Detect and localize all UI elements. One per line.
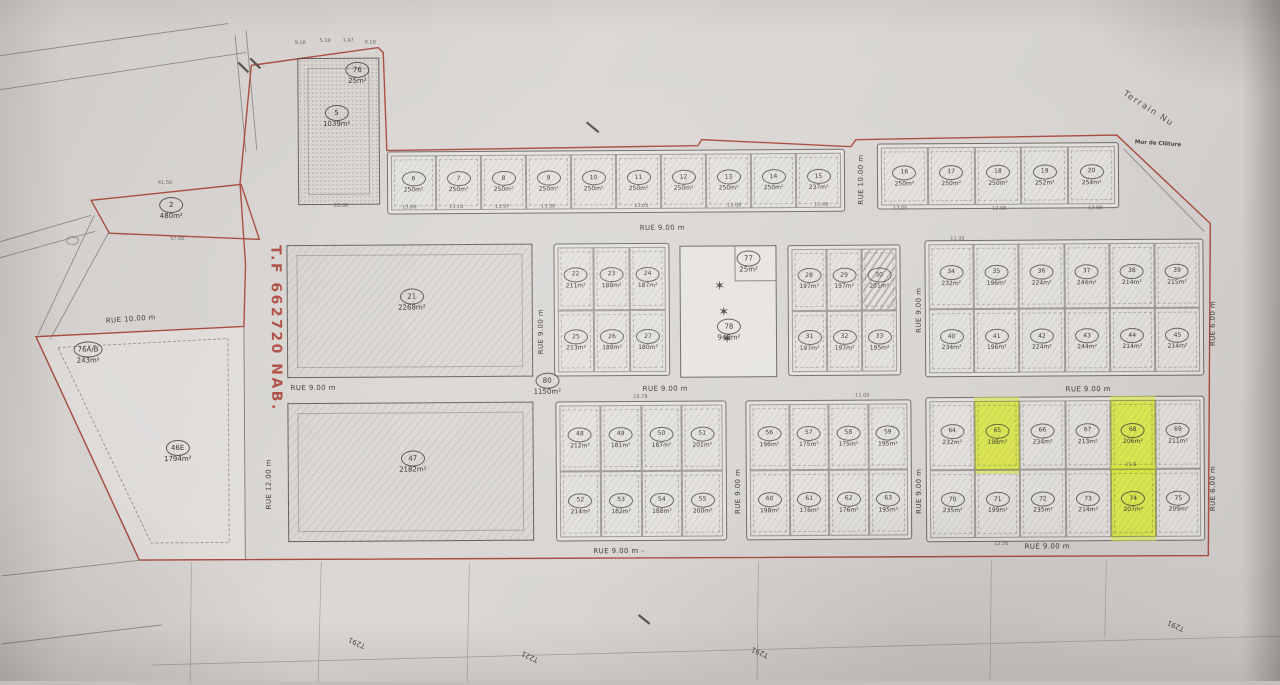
lot-area: 197m²: [800, 346, 820, 353]
lot-number: 36: [1029, 264, 1053, 279]
lot-20: 20254m²: [1068, 146, 1115, 204]
dimension-label: 10.78: [633, 394, 647, 400]
lot-area: 211m²: [566, 283, 586, 290]
lot-area: 250m²: [988, 180, 1008, 187]
lot-number: 38: [1120, 264, 1144, 279]
dimension-label: 13.08: [402, 204, 416, 210]
dimension-label: 13.06: [541, 204, 555, 210]
lot-number: 20: [1080, 164, 1104, 179]
parcel-area: 1039m²: [323, 121, 350, 129]
lot-9: 9250m²: [526, 154, 571, 209]
lot-24: 24187m²: [629, 247, 665, 310]
lot-area: 250m²: [674, 186, 694, 193]
lot-23: 23188m²: [593, 247, 629, 310]
lot-number: 52: [568, 493, 592, 508]
lot-number: 44: [1120, 328, 1144, 343]
lot-number: 53: [609, 493, 633, 508]
lot-67: 67213m²: [1065, 400, 1111, 469]
block-56-63: 56196m²57175m²58175m²59195m²60198m²61176…: [745, 399, 912, 540]
lot-area: 181m²: [611, 443, 631, 450]
lot-73: 73214m²: [1065, 469, 1111, 538]
lot-area: 197m²: [799, 284, 819, 291]
lot-area: 250m²: [764, 185, 784, 192]
street-label: RUE 9.00 m –: [593, 547, 645, 555]
lot-43: 43244m²: [1064, 308, 1110, 373]
lot-11: 11250m²: [616, 154, 661, 209]
parcel-badge-77: 7725m²: [736, 250, 760, 274]
lot-number: 7: [446, 171, 470, 186]
lot-area: 244m²: [1077, 345, 1097, 352]
lot-60: 60198m²: [750, 470, 790, 536]
lot-area: 244m²: [1077, 280, 1097, 287]
lot-8: 8250m²: [481, 155, 526, 210]
parcel-number: 77: [736, 250, 760, 266]
lot-area: 209m²: [1169, 507, 1189, 514]
dimension-label: 20.00: [334, 203, 348, 209]
block-28-33: 28197m²29197m²30201m²31197m²32197m²33195…: [787, 244, 901, 376]
lot-number: 6: [401, 172, 425, 187]
parcel-badge-5: 51039m²: [323, 105, 351, 129]
street-label: RUE 9.00 m: [915, 469, 923, 514]
lot-32: 32197m²: [827, 310, 862, 372]
parcel-number: 47: [401, 450, 425, 466]
lot-42: 42224m²: [1019, 308, 1065, 373]
title-deed-number: T.F 662720 NAB.: [267, 245, 284, 412]
lot-area: 250m²: [404, 188, 424, 195]
dimension-label: 13.10: [449, 204, 463, 210]
lot-area: 188m²: [602, 283, 622, 290]
street-label: RUE 9.00 m: [537, 309, 545, 354]
lot-number: 49: [609, 427, 633, 442]
lot-number: 57: [797, 426, 821, 441]
dimension-label: 12.50: [994, 541, 1008, 547]
lot-49: 49181m²: [600, 405, 641, 471]
lot-number: 60: [758, 492, 782, 507]
lot-number: 30: [867, 268, 891, 283]
dimension-label: 5.10: [320, 38, 331, 44]
lot-number: 50: [649, 427, 673, 442]
lot-area: 188m²: [652, 509, 672, 516]
lot-number: 15: [806, 169, 830, 184]
lot-area: 215m²: [1167, 280, 1187, 287]
lot-area: 195m²: [878, 441, 898, 448]
lot-62: 62176m²: [829, 470, 869, 536]
lot-number: 45: [1165, 328, 1189, 343]
parcel-badge-2: 2480m²: [159, 197, 183, 221]
lot-41: 41196m²: [974, 308, 1020, 373]
dimension-label: 57.00: [170, 236, 184, 242]
lot-number: 55: [691, 492, 715, 507]
lot-number: 26: [600, 330, 624, 345]
lot-area: 196m²: [987, 345, 1007, 352]
parcel-number: 46E: [166, 440, 190, 456]
lot-54: 54188m²: [641, 471, 682, 537]
lot-number: 58: [836, 425, 860, 440]
lot-16: 16250m²: [881, 147, 928, 205]
adjacent-title-label: T221: [520, 649, 539, 664]
lot-number: 75: [1166, 491, 1190, 506]
lot-area: 201m²: [692, 442, 712, 449]
parcel-badge-76: 7625m²: [345, 62, 369, 86]
lot-area: 175m²: [799, 442, 819, 449]
lot-area: 250m²: [719, 186, 739, 193]
lot-number: 54: [650, 492, 674, 507]
lot-29: 29197m²: [826, 249, 861, 311]
block-48-55: 48212m²49181m²50187m²51201m²52214m²53182…: [555, 400, 727, 541]
lot-area: 235m²: [943, 508, 963, 515]
lot-area: 196m²: [760, 442, 780, 449]
dimension-label: 13.05: [634, 203, 648, 209]
terrain-nu-label: Terrain Nu: [1121, 89, 1175, 129]
lot-number: 10: [581, 170, 605, 185]
mur-de-cloture-label: Mur de Clôture: [1135, 139, 1182, 148]
lot-number: 42: [1030, 329, 1054, 344]
parcel-area: 1794m²: [164, 456, 191, 464]
lot-number: 31: [797, 330, 821, 345]
lot-number: 18: [986, 164, 1010, 179]
lot-number: 67: [1076, 423, 1100, 438]
lot-area: 197m²: [834, 284, 854, 291]
lot-area: 252m²: [1035, 180, 1055, 187]
lot-61: 61176m²: [789, 470, 829, 536]
lot-number: 37: [1075, 264, 1099, 279]
lot-number: 9: [536, 171, 560, 186]
parcel-badge-21: 212268m²: [398, 288, 426, 312]
dimension-label: 13.97: [495, 204, 509, 210]
lot-area: 234m²: [1033, 439, 1053, 446]
lot-area: 250m²: [895, 181, 915, 188]
lot-area: 235m²: [1033, 508, 1053, 515]
lot-14: 14250m²: [751, 153, 796, 208]
adjacent-title-label: T291: [1166, 618, 1185, 633]
lot-area: 214m²: [1122, 344, 1142, 351]
street-label: RUE 9.00 m: [734, 469, 742, 514]
street-label: RUE 10.00 m: [106, 313, 157, 325]
lot-area: 198m²: [760, 508, 780, 515]
lot-66: 66234m²: [1020, 400, 1066, 469]
lot-area: 211m²: [1168, 439, 1188, 446]
lot-area: 250m²: [941, 181, 961, 188]
lot-number: 41: [985, 329, 1009, 344]
parcel-area: 1150m²: [534, 389, 561, 397]
lot-number: 39: [1165, 264, 1189, 279]
adjacent-title-label: T291: [750, 645, 769, 659]
street-label: RUE 9.00 m: [643, 385, 688, 393]
lot-number: 64: [940, 424, 964, 439]
dimension-label: 12.08: [1088, 205, 1102, 211]
lot-number: 65: [985, 424, 1009, 439]
dimension-label: 11.35: [950, 236, 964, 242]
lot-number: 16: [892, 165, 916, 180]
lot-10: 10250m²: [571, 154, 616, 209]
lot-57: 57175m²: [789, 404, 829, 470]
lot-65: 65198m²: [975, 401, 1021, 470]
lot-number: 33: [867, 329, 891, 344]
lot-area: 199m²: [988, 508, 1008, 515]
lot-51: 51201m²: [682, 404, 723, 470]
parcel-badge-46E: 46E1794m²: [164, 440, 192, 464]
lot-area: 232m²: [942, 440, 962, 447]
lot-area: 195m²: [870, 345, 890, 352]
lot-number: 14: [761, 169, 785, 184]
lot-number: 40: [940, 329, 964, 344]
lot-37: 37244m²: [1064, 243, 1110, 308]
lot-52: 52214m²: [560, 471, 601, 537]
top-strip-east: 16250m²17250m²18250m²19252m²20254m²: [877, 142, 1119, 209]
lot-number: 34: [939, 265, 963, 280]
lot-area: 250m²: [629, 186, 649, 193]
lot-number: 71: [986, 492, 1010, 507]
lot-number: 62: [837, 491, 861, 506]
lot-6: 6250m²: [391, 155, 436, 210]
lot-area: 224m²: [1032, 345, 1052, 352]
parcel-area: 480m²: [160, 213, 183, 221]
block-64-75: 64232m²65198m²66234m²67213m²68206m²69211…: [925, 396, 1205, 543]
lot-75: 75209m²: [1156, 468, 1202, 537]
lot-area: 201m²: [869, 284, 889, 291]
dimension-label: 15.8: [1125, 462, 1136, 468]
lot-70: 70235m²: [930, 469, 976, 538]
tree-icon: ✶: [714, 279, 725, 294]
lot-number: 35: [984, 265, 1008, 280]
lot-number: 70: [941, 492, 965, 507]
lot-area: 188m²: [602, 346, 622, 353]
lot-number: 74: [1121, 491, 1145, 506]
lot-area: 187m²: [652, 443, 672, 450]
parcel-area: 2268m²: [398, 304, 425, 312]
lot-59: 59195m²: [868, 403, 908, 469]
lot-number: 22: [564, 267, 588, 282]
dimension-label: 11.00: [855, 393, 869, 399]
lot-48: 48212m²: [559, 405, 600, 471]
lot-area: 234m²: [942, 345, 962, 352]
parcel-badge-78: 78948m²: [717, 319, 741, 343]
parcel-badge-80: 801150m²: [533, 373, 561, 397]
lot-area: 214m²: [571, 509, 591, 516]
block-22-27: 22211m²23188m²24187m²25213m²26188m²27180…: [553, 243, 670, 377]
parcel-area: 25m²: [348, 78, 367, 86]
lot-63: 63195m²: [868, 469, 908, 535]
lot-number: 73: [1076, 492, 1100, 507]
lot-area: 187m²: [638, 283, 658, 290]
lot-44: 44214m²: [1109, 307, 1155, 372]
street-label: RUE 6.00 m: [1209, 466, 1217, 511]
lot-number: 28: [797, 268, 821, 283]
lot-15: 15237m²: [796, 153, 841, 208]
lot-50: 50187m²: [641, 405, 682, 471]
lot-number: 24: [636, 267, 660, 282]
lot-56: 56196m²: [749, 404, 789, 470]
lot-number: 56: [757, 426, 781, 441]
parcel-number: 21: [400, 288, 424, 304]
lot-26: 26188m²: [594, 310, 630, 373]
lot-45: 45214m²: [1155, 307, 1201, 372]
lot-53: 53182m²: [601, 471, 642, 537]
lot-number: 29: [832, 268, 856, 283]
dimension-label: 13.08: [727, 202, 741, 208]
parcel-badge-47: 472182m²: [399, 450, 427, 474]
lot-7: 7250m²: [436, 155, 481, 210]
lot-number: 59: [876, 425, 900, 440]
lot-number: 19: [1033, 164, 1057, 179]
lot-58: 58175m²: [828, 404, 868, 470]
street-label: RUE 9.00 m: [1066, 385, 1111, 393]
dimension-label: 9.10: [295, 40, 306, 46]
parcel-number: 2: [159, 197, 183, 213]
parcel-area: 243m²: [77, 357, 100, 365]
lot-34: 34232m²: [928, 244, 974, 309]
parcel-number: 76A/B: [74, 341, 103, 357]
lot-area: 207m²: [1123, 507, 1143, 514]
parcel-badge-76A/B: 76A/B243m²: [74, 341, 103, 365]
lot-18: 18250m²: [974, 147, 1021, 205]
lot-area: 196m²: [987, 281, 1007, 288]
lot-area: 250m²: [584, 186, 604, 193]
lot-64: 64232m²: [929, 401, 975, 470]
lot-area: 250m²: [539, 187, 559, 194]
lot-35: 35196m²: [974, 244, 1020, 309]
lot-13: 13250m²: [706, 153, 751, 208]
lot-number: 51: [690, 426, 714, 441]
photographed-plan: T.F 662720 NAB. Terrain Nu Mur de Clôtur…: [0, 0, 1280, 681]
lot-number: 63: [876, 491, 900, 506]
lot-number: 61: [797, 492, 821, 507]
lot-area: 237m²: [809, 185, 829, 192]
lot-area: 182m²: [611, 509, 631, 516]
lot-area: 232m²: [941, 281, 961, 288]
lot-area: 195m²: [878, 507, 898, 514]
parcel-46e-outline: [36, 326, 245, 560]
parcel-area: 948m²: [717, 335, 740, 343]
lot-30: 30201m²: [861, 248, 896, 310]
lot-12: 12250m²: [661, 154, 706, 209]
street-label: RUE 9.00 m: [915, 288, 923, 333]
lot-31: 31197m²: [792, 310, 827, 372]
lot-number: 48: [568, 427, 592, 442]
lot-area: 213m²: [566, 346, 586, 353]
dimension-label: 12.08: [992, 206, 1006, 212]
street-label: RUE 9.00 m: [291, 384, 336, 392]
lot-55: 55200m²: [682, 470, 723, 536]
lot-17: 17250m²: [928, 147, 975, 205]
lot-area: 254m²: [1082, 180, 1102, 187]
lot-number: 23: [600, 267, 624, 282]
lot-number: 69: [1166, 423, 1190, 438]
lot-area: 197m²: [835, 346, 855, 353]
lot-area: 214m²: [1078, 508, 1098, 515]
lot-74: 74207m²: [1110, 468, 1156, 537]
lot-number: 11: [626, 170, 650, 185]
lot-area: 198m²: [988, 440, 1008, 447]
lot-number: 68: [1121, 423, 1145, 438]
parcel-area: 2182m²: [399, 466, 426, 474]
lot-area: 212m²: [570, 443, 590, 450]
lot-number: 25: [564, 330, 588, 345]
lot-area: 200m²: [693, 508, 713, 515]
lot-27: 27180m²: [630, 309, 666, 372]
lot-69: 69211m²: [1155, 400, 1201, 469]
lot-area: 214m²: [1168, 344, 1188, 351]
lot-19: 19252m²: [1021, 146, 1068, 204]
lot-area: 206m²: [1123, 439, 1143, 446]
lot-area: 180m²: [638, 345, 658, 352]
dimension-label: 13.05: [893, 205, 907, 211]
lot-area: 214m²: [1122, 280, 1142, 287]
lot-area: 175m²: [839, 441, 859, 448]
street-label: RUE 10.00 m: [857, 155, 865, 205]
field-division-lines: [151, 556, 1280, 684]
lot-38: 38214m²: [1109, 243, 1155, 308]
lot-number: 43: [1075, 329, 1099, 344]
lot-number: 8: [491, 171, 515, 186]
lot-area: 250m²: [494, 187, 514, 194]
lot-number: 72: [1031, 492, 1055, 507]
lot-71: 71199m²: [975, 469, 1021, 538]
lot-number: 13: [716, 170, 740, 185]
parcel-area: 25m²: [739, 266, 758, 274]
parcel-number: 76: [345, 62, 369, 78]
parcel-number: 5: [325, 105, 349, 121]
lot-number: 17: [939, 165, 963, 180]
dimension-label: 9.10: [365, 40, 376, 46]
lot-22: 22211m²: [557, 247, 593, 310]
street-label: RUE 9.00 m: [640, 224, 685, 232]
dimension-label: 1.47: [343, 38, 354, 44]
lot-33: 33195m²: [862, 310, 897, 372]
lot-39: 39215m²: [1154, 243, 1200, 308]
street-label: RUE 12.00 m: [265, 459, 273, 509]
lot-number: 66: [1030, 423, 1054, 438]
lot-area: 176m²: [839, 507, 859, 514]
street-label: RUE 9.00 m: [1025, 542, 1070, 550]
dimension-label: 41.50: [158, 180, 172, 186]
subdivision-plan: T.F 662720 NAB. Terrain Nu Mur de Clôtur…: [0, 0, 1280, 685]
parcel-number: 80: [535, 373, 559, 389]
lot-number: 27: [636, 329, 660, 344]
dimension-label: 11.46: [814, 202, 828, 208]
parcel-number: 78: [717, 319, 741, 335]
lot-area: 224m²: [1032, 280, 1052, 287]
lot-36: 36224m²: [1019, 243, 1065, 308]
lot-area: 213m²: [1078, 439, 1098, 446]
lot-25: 25213m²: [558, 310, 594, 373]
lot-area: 176m²: [799, 508, 819, 515]
lot-68: 68206m²: [1110, 400, 1156, 469]
street-label: RUE 6.00 m: [1209, 301, 1217, 346]
block-34-45: 34232m²35196m²36224m²37244m²38214m²39215…: [924, 239, 1204, 378]
lot-28: 28197m²: [791, 249, 826, 311]
lot-area: 250m²: [449, 187, 469, 194]
adjacent-title-label: T291: [347, 635, 366, 650]
lot-40: 40234m²: [929, 308, 975, 373]
lot-number: 32: [832, 330, 856, 345]
lot-72: 72235m²: [1020, 469, 1066, 538]
lot-number: 12: [671, 170, 695, 185]
